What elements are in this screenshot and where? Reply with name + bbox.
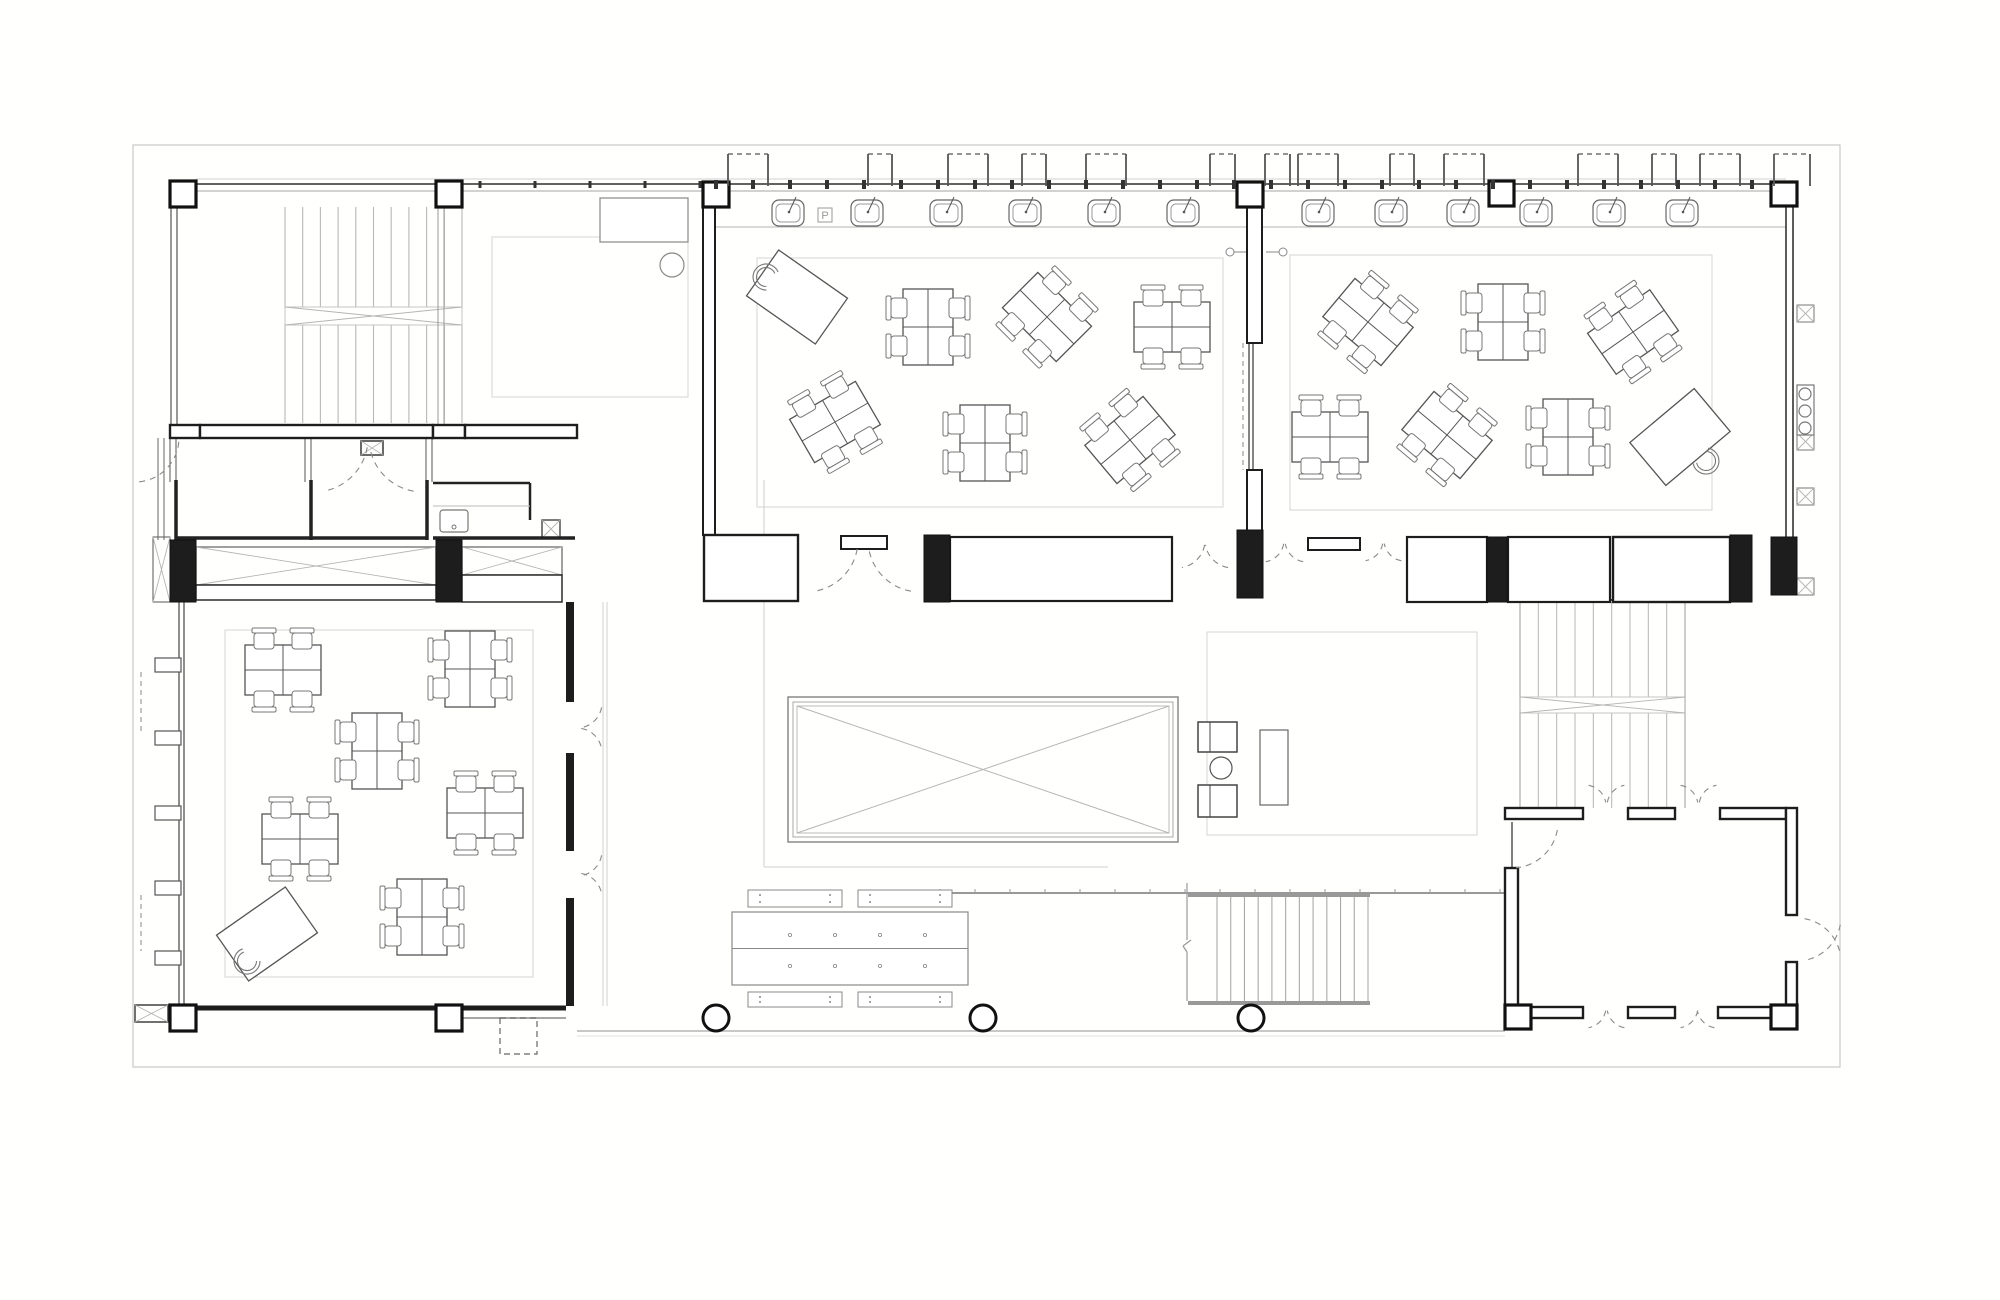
vestibule-wall: [200, 425, 433, 438]
part: [747, 250, 848, 344]
part: [869, 1001, 871, 1003]
chair-icon: [1179, 348, 1203, 369]
chair-icon: [1589, 444, 1610, 468]
chair-icon: [943, 450, 964, 474]
wall-pier: [924, 535, 950, 602]
washbasin-icon: [1375, 197, 1407, 226]
part: [751, 180, 755, 189]
shaft-box: [542, 520, 560, 538]
wardrobe-x-panel: [462, 547, 562, 575]
classroom1-table-group: [886, 289, 970, 365]
chair-icon: [252, 628, 276, 649]
room-se-wall: [1505, 808, 1583, 819]
stair-landing: [1520, 697, 1685, 713]
chair-icon: [492, 834, 516, 855]
classroom3-table-group: [380, 879, 464, 955]
vestibule-wall: [433, 425, 465, 438]
chair-icon: [1179, 285, 1203, 306]
part: [1121, 180, 1125, 189]
chair-icon: [1006, 450, 1027, 474]
vent-circle: [1799, 388, 1811, 400]
part: [788, 211, 791, 214]
facade-window-box: [948, 154, 988, 186]
facade-window-box: [1086, 154, 1126, 186]
part: [939, 894, 941, 896]
chair-icon: [1524, 329, 1545, 353]
classroom3-table-group: [428, 631, 512, 707]
chair-icon: [252, 691, 276, 712]
facade-vent-box: [1797, 305, 1814, 322]
part: [862, 180, 866, 189]
part: [1491, 180, 1495, 189]
door-swing: [581, 707, 601, 727]
door-swing: [1697, 1011, 1714, 1028]
washbasin-icon: [772, 197, 804, 226]
classroom1-table-group: [781, 367, 889, 478]
classroom1-table-group: [1134, 285, 1210, 369]
part: [759, 901, 761, 903]
chair-icon: [1524, 291, 1545, 315]
chair-icon: [1299, 458, 1323, 479]
chair-icon: [443, 924, 464, 948]
part: [699, 181, 702, 188]
chair-icon: [307, 860, 331, 881]
vestibule-wall: [170, 425, 200, 438]
part: [825, 180, 829, 189]
washbasin-icon: [1666, 197, 1698, 226]
chair-icon: [1141, 348, 1165, 369]
wardrobe-frame: [704, 535, 798, 601]
wardrobe-frame: [950, 537, 1172, 601]
door-swing: [581, 855, 601, 875]
chair-icon: [491, 638, 512, 662]
door-swing: [1589, 1011, 1606, 1028]
lounge-side-table: [1260, 730, 1288, 805]
part: [1750, 180, 1754, 189]
door-swing: [370, 447, 414, 491]
column: [1771, 1005, 1797, 1029]
part: [1536, 211, 1539, 214]
part: [1343, 180, 1347, 189]
chair-icon: [1006, 412, 1027, 436]
part: [1158, 180, 1162, 189]
wall-pier: [1730, 535, 1752, 602]
part: [858, 890, 952, 907]
chair-icon: [1526, 444, 1547, 468]
chair-icon: [949, 334, 970, 358]
part: [939, 996, 941, 998]
part: [479, 181, 482, 188]
part: [1454, 180, 1458, 189]
bench: [748, 890, 842, 907]
basement-stair: [1217, 897, 1368, 1001]
part: [1195, 180, 1199, 189]
column: [1505, 1005, 1531, 1029]
room-se-wall: [1786, 962, 1797, 1007]
basement-stair-rail: [1188, 1001, 1370, 1005]
part: [1318, 211, 1321, 214]
facade-window-box: [1265, 154, 1290, 186]
wall-pier: [1771, 537, 1797, 595]
part: [714, 180, 718, 189]
chair-icon: [290, 691, 314, 712]
classroom2-table-group: [1578, 276, 1688, 388]
bench: [858, 890, 952, 907]
chair-icon: [491, 676, 512, 700]
part: [155, 731, 181, 745]
part: [155, 951, 181, 965]
p-marker: P: [818, 208, 832, 222]
chair-icon: [443, 886, 464, 910]
column: [436, 181, 462, 207]
chair-icon: [454, 771, 478, 792]
washbasin-icon: [1009, 197, 1041, 226]
armchair-icon: [1198, 722, 1237, 752]
vent-circle: [1799, 422, 1811, 434]
chair-icon: [380, 886, 401, 910]
door-swing: [1681, 785, 1698, 802]
wall-pier: [170, 540, 196, 602]
door-stop: [1279, 248, 1287, 256]
chair-icon: [307, 797, 331, 818]
teacher-desk-classroom3: [217, 887, 318, 981]
chair-icon: [1526, 406, 1547, 430]
door-swing: [1699, 785, 1716, 802]
door-swing: [581, 728, 601, 748]
washbasin-icon: [930, 197, 962, 226]
chair-icon: [1141, 285, 1165, 306]
column: [436, 1005, 462, 1031]
part: [1528, 180, 1532, 189]
washbasin-icon: [851, 197, 883, 226]
chair-icon: [380, 924, 401, 948]
exterior-stub: [500, 1018, 537, 1054]
door-swing: [1266, 544, 1284, 562]
sliding-door-panel: [841, 536, 887, 549]
part: [1676, 180, 1680, 189]
nw-stair-lower-run: [285, 325, 462, 423]
washbasin-icon: [1302, 197, 1334, 226]
facade-window-box: [1578, 154, 1618, 186]
part: [869, 996, 871, 998]
facade-window-box: [1700, 154, 1740, 186]
wall-pier: [436, 540, 462, 602]
part: [1047, 180, 1051, 189]
room-se-wall: [1628, 1007, 1675, 1018]
chair-icon: [1589, 406, 1610, 430]
chair-icon: [428, 638, 449, 662]
part: [644, 181, 647, 188]
door-swing: [1366, 544, 1383, 561]
round-column: [970, 1005, 996, 1031]
teacher-desk-office: [600, 198, 688, 242]
classroom1-table-group: [1074, 383, 1186, 496]
vestibule-wall: [465, 425, 577, 438]
part: [1104, 211, 1107, 214]
part: [829, 1001, 831, 1003]
part: [155, 881, 181, 895]
classroom3-table-group: [262, 797, 338, 881]
sink-drain: [452, 525, 456, 529]
hall-skylight-void: [788, 697, 1178, 842]
wardrobe-x-panel: [196, 547, 436, 585]
part: [867, 211, 870, 214]
chair-icon: [454, 834, 478, 855]
washbasin-icon: [1088, 197, 1120, 226]
coat-hook-row: [196, 585, 436, 600]
round-column: [1238, 1005, 1264, 1031]
part: [1025, 211, 1028, 214]
part: [759, 1001, 761, 1003]
part: [899, 180, 903, 189]
wall-pier: [1237, 530, 1263, 598]
classroom3-table-group: [335, 713, 419, 789]
part: [1232, 180, 1236, 189]
chair-icon: [1461, 291, 1482, 315]
door-swing: [1516, 830, 1557, 868]
facade-window-box: [1298, 154, 1338, 186]
room-se-wall: [1505, 868, 1518, 1005]
part: [939, 901, 941, 903]
chair-icon: [1337, 458, 1361, 479]
part: [1463, 211, 1466, 214]
part: [155, 806, 181, 820]
sliding-door-panel: [1308, 538, 1360, 550]
chair-icon: [492, 771, 516, 792]
classroom3-table-group: [245, 628, 321, 712]
room-outline-office: [492, 237, 688, 397]
room-se-wall: [1786, 808, 1797, 915]
floor-plan-page: P: [0, 0, 2000, 1300]
chair-icon: [1337, 395, 1361, 416]
part: [869, 894, 871, 896]
door-swing: [1205, 545, 1228, 568]
facade-window-box: [1444, 154, 1484, 186]
part: [858, 992, 952, 1007]
label: P: [821, 210, 828, 222]
refectory-table: [732, 912, 968, 985]
washbasin-icon: [1520, 197, 1552, 226]
part: [788, 180, 792, 189]
facade-window-box: [1390, 154, 1414, 186]
chair-icon: [398, 720, 419, 744]
classroom1-table-group: [990, 260, 1103, 373]
facade-window-box: [1022, 154, 1046, 186]
chair-icon: [943, 412, 964, 436]
armchair-icon: [1198, 785, 1237, 817]
door-swing: [1805, 925, 1841, 961]
facade-window-box: [1652, 154, 1676, 186]
part: [1010, 180, 1014, 189]
part: [1417, 180, 1421, 189]
chair-icon: [335, 720, 356, 744]
door-swing: [1607, 1011, 1624, 1028]
column: [170, 181, 196, 207]
part: [939, 1001, 941, 1003]
part: [534, 181, 537, 188]
part: [829, 901, 831, 903]
room-se-wall: [1531, 1007, 1583, 1018]
door-swing: [1607, 785, 1624, 802]
wardrobe-frame: [1508, 537, 1610, 602]
room-se-wall: [1718, 1007, 1771, 1018]
wardrobe-frame: [1407, 537, 1487, 602]
part: [1084, 180, 1088, 189]
facade-window-box: [1210, 154, 1235, 186]
classroom2-table-group: [1526, 399, 1610, 475]
nw-stair-upper-run: [285, 207, 462, 307]
facade-window-box: [728, 154, 768, 186]
part: [748, 992, 842, 1007]
office-stool: [660, 253, 684, 277]
door-shaft-box: [361, 441, 383, 455]
bench: [858, 992, 952, 1007]
classroom1-table-group: [943, 405, 1027, 481]
part: [829, 894, 831, 896]
round-column: [703, 1005, 729, 1031]
chair-icon: [290, 628, 314, 649]
chair-icon: [398, 758, 419, 782]
washbasin-icon: [1167, 197, 1199, 226]
door-swing: [815, 549, 857, 591]
part: [946, 211, 949, 214]
door-swing: [1681, 1011, 1698, 1028]
facade-window-box: [868, 154, 892, 186]
wardrobe-frame: [1613, 537, 1730, 602]
divider-wall-upper: [1247, 207, 1262, 343]
facade-vent-box: [1797, 578, 1814, 595]
part: [748, 890, 842, 907]
classroom2-table-group: [1391, 378, 1503, 491]
divider-wall-lower: [1247, 470, 1262, 532]
door-swing: [1589, 785, 1606, 802]
part: [1713, 180, 1717, 189]
part: [589, 181, 592, 188]
part: [155, 658, 181, 672]
chair-icon: [949, 296, 970, 320]
classroom1-left-wall: [703, 207, 715, 535]
east-stair-upper-run: [1520, 602, 1685, 697]
door-swing: [869, 549, 911, 591]
break-mark: [1183, 946, 1187, 952]
chair-icon: [269, 797, 293, 818]
door-swing: [581, 873, 601, 893]
room-se-wall: [1720, 808, 1786, 819]
wall-pier: [1487, 537, 1507, 602]
facade-piers: [155, 658, 181, 965]
room-outline-lounge-area: [1207, 632, 1477, 835]
part: [1639, 180, 1643, 189]
door-swing: [1285, 544, 1303, 562]
part: [1198, 722, 1237, 752]
lounge-round-table: [1210, 757, 1232, 779]
part: [1183, 211, 1186, 214]
chair-icon: [269, 860, 293, 881]
part: [1198, 785, 1237, 817]
teacher-desk-classroom1: [747, 250, 848, 344]
part: [1306, 180, 1310, 189]
part: [1602, 180, 1606, 189]
door-stop: [1226, 248, 1234, 256]
corner-box: [135, 1005, 168, 1022]
vent-circle: [1799, 405, 1811, 417]
part: [869, 901, 871, 903]
washbasin-icon: [1447, 197, 1479, 226]
floor-plan-drawing: P: [0, 0, 2000, 1300]
chair-icon: [886, 296, 907, 320]
classroom2-table-group: [1461, 284, 1545, 360]
column: [170, 1005, 196, 1031]
chair-icon: [335, 758, 356, 782]
part: [759, 894, 761, 896]
part: [973, 180, 977, 189]
part: [1565, 180, 1569, 189]
break-mark: [1183, 940, 1191, 946]
part: [1269, 180, 1273, 189]
chair-icon: [1299, 395, 1323, 416]
washbasin-icon: [1593, 197, 1625, 226]
part: [936, 180, 940, 189]
chair-icon: [1461, 329, 1482, 353]
chair-icon: [428, 676, 449, 700]
part: [217, 887, 318, 981]
room-se-wall: [1628, 808, 1675, 819]
classroom2-table-group: [1312, 265, 1424, 378]
stair-landing: [285, 307, 462, 325]
part: [759, 996, 761, 998]
part: [1682, 211, 1685, 214]
door-swing: [1182, 545, 1205, 568]
bench: [748, 992, 842, 1007]
facade-vent-box: [1797, 488, 1814, 505]
coat-hook-row: [462, 575, 562, 602]
door-swing: [1805, 919, 1841, 955]
part: [1609, 211, 1612, 214]
classroom3-table-group: [447, 771, 523, 855]
part: [1380, 180, 1384, 189]
chair-icon: [886, 334, 907, 358]
part: [829, 996, 831, 998]
door-swing: [1384, 544, 1401, 561]
classroom2-table-group: [1292, 395, 1368, 479]
part: [1391, 211, 1394, 214]
side-panel: [153, 537, 170, 602]
column: [1237, 182, 1263, 207]
